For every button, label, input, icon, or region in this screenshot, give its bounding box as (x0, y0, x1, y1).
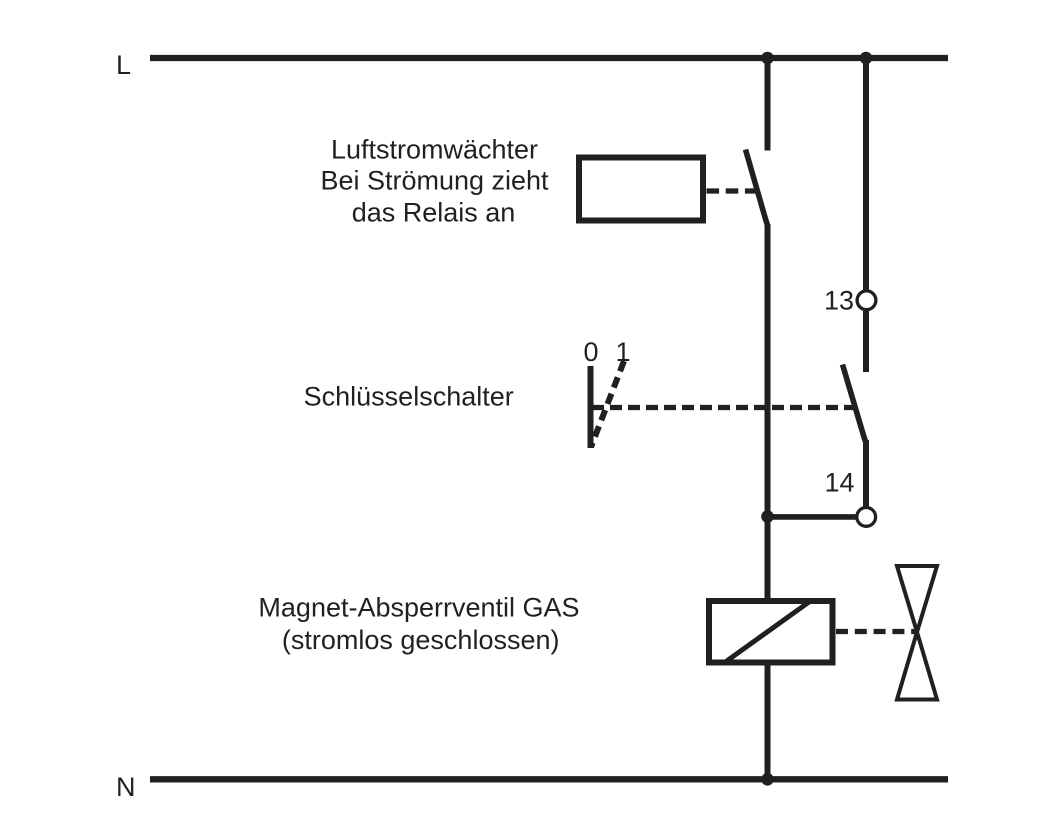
svg-text:das Relais an: das Relais an (352, 197, 516, 227)
svg-text:L: L (116, 50, 131, 80)
svg-text:13: 13 (824, 285, 854, 315)
svg-text:(stromlos geschlossen): (stromlos geschlossen) (282, 625, 560, 655)
svg-text:0: 0 (583, 337, 598, 367)
svg-text:14: 14 (824, 467, 854, 497)
svg-text:Luftstromwächter: Luftstromwächter (331, 134, 538, 164)
svg-text:Magnet-Absperrventil GAS: Magnet-Absperrventil GAS (258, 593, 579, 623)
svg-text:N: N (116, 772, 136, 802)
svg-text:Schlüsselschalter: Schlüsselschalter (304, 381, 514, 411)
svg-text:Bei Strömung zieht: Bei Strömung zieht (320, 165, 549, 195)
